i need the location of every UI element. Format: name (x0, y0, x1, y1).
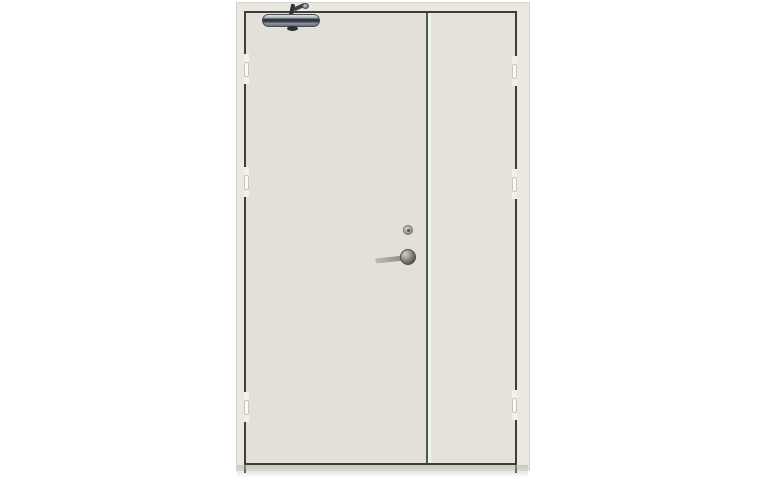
floor-shadow (237, 465, 528, 478)
hinge-right-middle (512, 169, 517, 199)
lock-cylinder (403, 225, 413, 235)
hinge-right-top (512, 56, 517, 86)
double-door-assembly (236, 2, 530, 476)
hinge-left-bottom (244, 392, 249, 422)
hinge-left-middle (244, 167, 249, 197)
hinge-right-bottom (512, 390, 517, 420)
product-photo-canvas (0, 0, 768, 480)
meeting-stile-highlight (428, 13, 431, 463)
left-door-leaf (246, 13, 426, 463)
door-closer-valve (287, 26, 298, 31)
handle-rose (400, 249, 416, 265)
door-closer-arm-elbow (302, 3, 309, 9)
right-door-leaf (429, 13, 515, 463)
door-leaves (244, 11, 517, 465)
hinge-left-top (244, 54, 249, 84)
